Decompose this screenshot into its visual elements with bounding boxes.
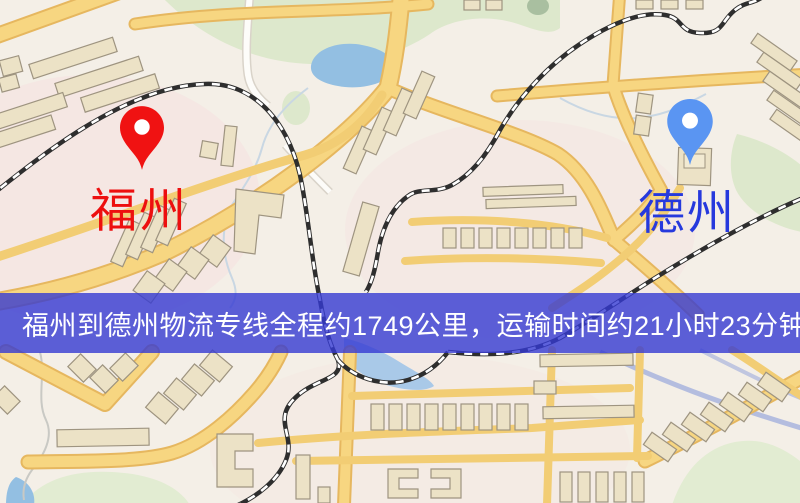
origin-pin-icon	[120, 104, 164, 172]
origin-city-label: 福州	[90, 172, 188, 241]
destination-city-label: 德州	[638, 174, 736, 243]
route-info-banner: 福州到德州物流专线全程约1749公里，运输时间约21小时23分钟.	[0, 293, 800, 353]
destination-pin-icon	[667, 99, 713, 165]
logistics-map: 福州 德州 福州到德州物流专线全程约1749公里，运输时间约21小时23分钟.	[0, 0, 800, 503]
map-image	[0, 0, 800, 503]
route-info-text: 福州到德州物流专线全程约1749公里，运输时间约21小时23分钟.	[22, 304, 800, 343]
